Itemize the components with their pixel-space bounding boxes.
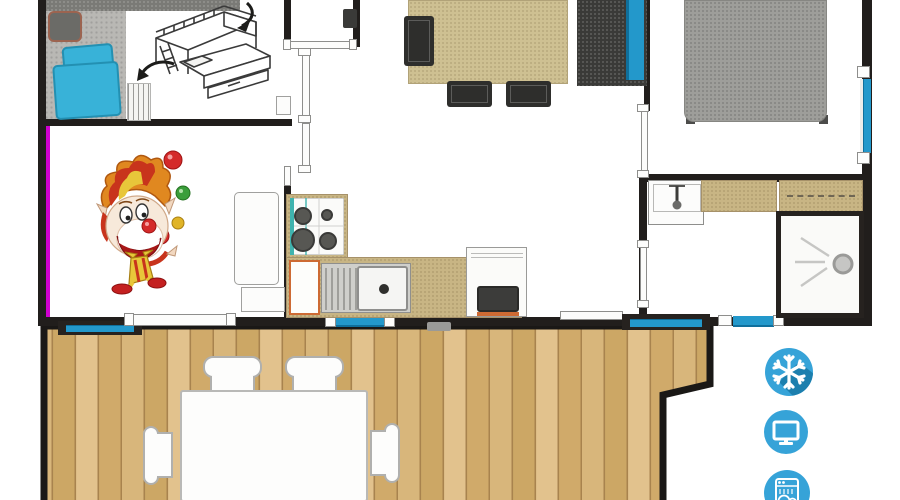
dining-chair [404, 16, 434, 66]
window-glass-right [863, 79, 871, 153]
appliance-unit [466, 247, 527, 317]
kitchen-door [284, 166, 291, 186]
wall-bedroom-bottom [46, 119, 292, 126]
floorplan-stage [0, 0, 900, 500]
appliance-door [477, 286, 519, 312]
door-cap [283, 39, 291, 50]
chair-inner [510, 85, 547, 103]
door-cap [637, 170, 649, 178]
sink-drain [379, 284, 389, 294]
kitchen-sink-unit [321, 263, 411, 313]
dining-chair [447, 81, 492, 107]
terrace-chair-seat [157, 432, 173, 478]
door-leaf [234, 192, 279, 285]
terrace-window-glass [630, 319, 702, 327]
desk-chair [48, 11, 82, 42]
terrace-window-glass [66, 325, 134, 332]
wall-left [38, 0, 46, 325]
wardrobe [779, 180, 863, 212]
door-cap [298, 48, 311, 56]
door-cap [637, 104, 649, 112]
sliding-door [131, 314, 229, 326]
door-cap [124, 313, 134, 326]
sofa-blue-cushion [626, 0, 644, 80]
dishwasher-icon [764, 470, 810, 500]
cabinet-small [241, 287, 285, 312]
snowflake-icon [765, 348, 813, 396]
window-cap [857, 66, 870, 78]
cabinet-orange [289, 260, 320, 315]
door-cap [637, 240, 649, 248]
magenta-strip [46, 124, 50, 317]
appliance-lid-line [471, 257, 523, 258]
bunk-bed-sketch [128, 2, 280, 114]
double-bed [684, 0, 827, 122]
faucet-icon [649, 181, 705, 226]
door-bar [560, 311, 623, 320]
corridor-door [302, 54, 310, 117]
bathroom-sink [648, 180, 704, 225]
drainboard [325, 268, 357, 310]
corridor-door [302, 123, 310, 167]
shower [776, 211, 864, 318]
door-cap [349, 39, 357, 50]
chair-inner [451, 85, 488, 103]
terrace-chair-back [285, 356, 344, 378]
wardrobe-hinge-line [787, 195, 855, 197]
door-cap [226, 313, 236, 326]
door-cap [637, 300, 649, 308]
window-glass [336, 317, 385, 327]
window-glass [733, 316, 774, 327]
master-door [641, 110, 648, 172]
appliance-handle [477, 312, 519, 316]
window-cap [857, 152, 870, 164]
door-cap [298, 115, 311, 123]
terrace-chair-seat [370, 430, 386, 476]
tv-icon [764, 410, 808, 454]
bathroom-door [640, 246, 647, 301]
terrace-table [180, 390, 368, 500]
chair-inner [408, 20, 430, 62]
window-cap [718, 315, 732, 326]
clown-illustration [95, 146, 211, 296]
bed-pillow-large [52, 61, 122, 120]
sofa [577, 0, 647, 86]
bathroom-counter [701, 180, 777, 212]
stove-4-burners [290, 198, 344, 255]
wall-tv [343, 9, 357, 28]
shower-spray-icon [781, 216, 859, 313]
terrace-chair-back [203, 356, 262, 378]
appliance-lid-line [471, 253, 523, 254]
terrace-step [427, 322, 451, 331]
door-cap [298, 165, 311, 173]
terrace-chair-back [384, 423, 400, 483]
dining-chair [506, 81, 551, 107]
